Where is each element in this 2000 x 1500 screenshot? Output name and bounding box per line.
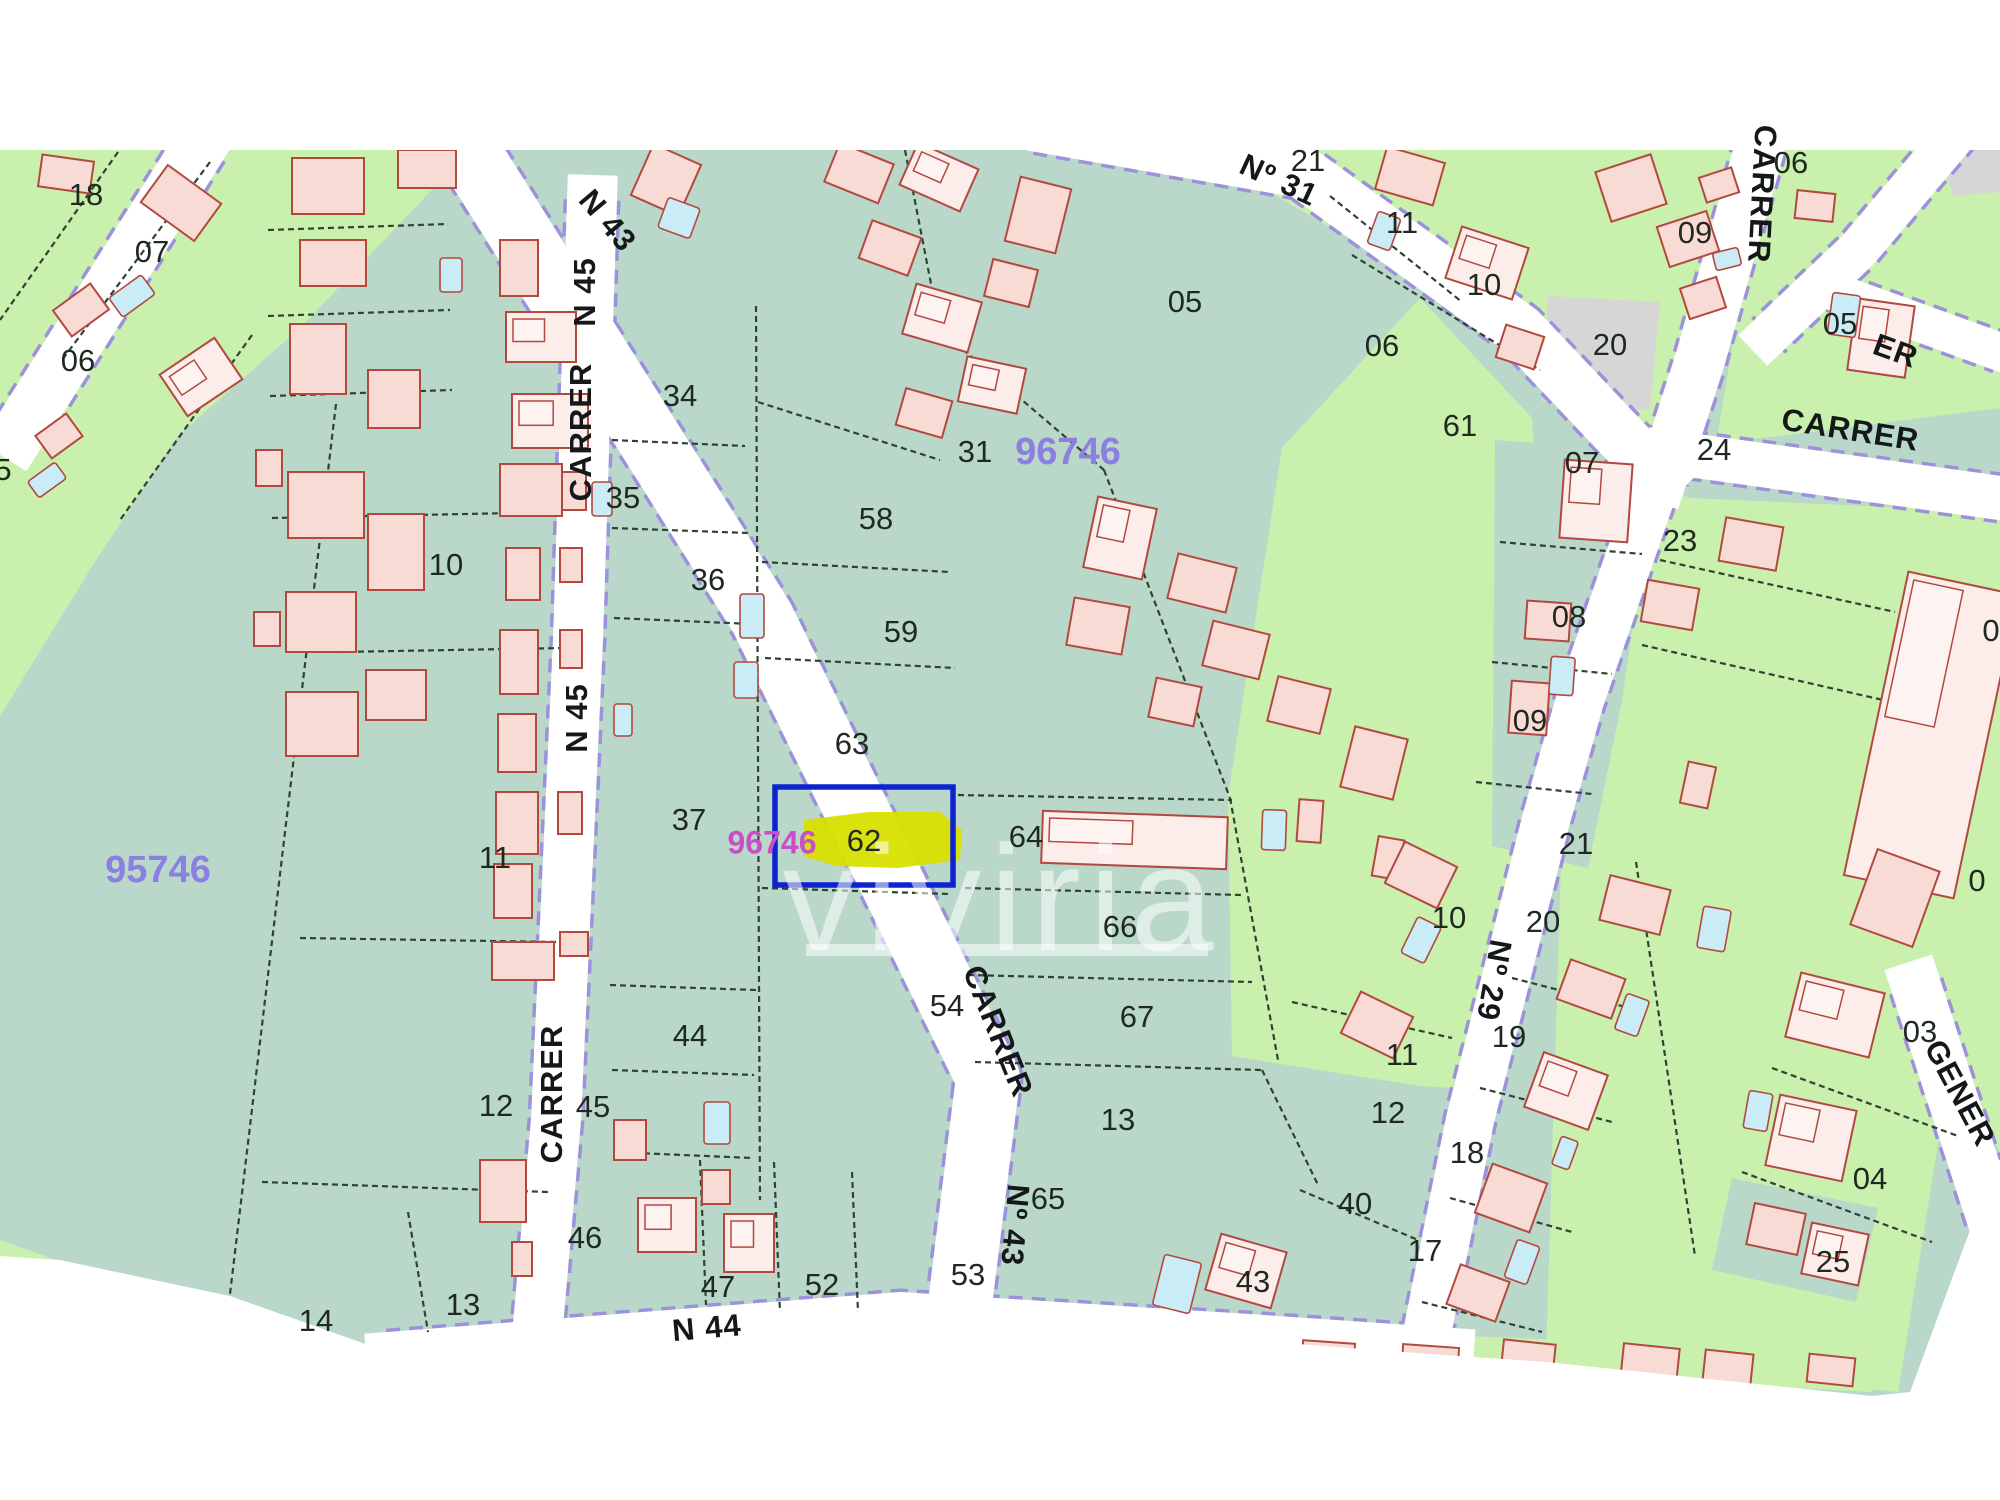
building: [492, 942, 554, 980]
building-footprint: [1148, 678, 1201, 727]
street-label-n-44: N 44: [671, 1307, 743, 1348]
building: [724, 1214, 774, 1272]
building: [1148, 678, 1201, 727]
parcel-label-06: 06: [1365, 328, 1399, 363]
building-inner: [969, 365, 1000, 391]
building: [638, 1198, 696, 1252]
building-footprint: [368, 370, 420, 428]
parcel-label-43: 43: [1236, 1264, 1270, 1299]
building: [500, 240, 538, 296]
building-footprint: [1795, 190, 1836, 222]
building-footprint: [560, 630, 582, 668]
building: [366, 670, 426, 720]
building: [614, 1120, 646, 1160]
building-footprint: [506, 548, 540, 600]
parcel-label-37: 37: [672, 802, 706, 837]
building-inner: [519, 401, 553, 425]
building: [300, 240, 366, 286]
parcel-label-59: 59: [884, 614, 918, 649]
parcel-label-35: 35: [606, 480, 640, 515]
building: [286, 692, 358, 756]
building: [368, 514, 424, 590]
building: [292, 158, 364, 214]
parcel-label-52: 52: [805, 1267, 839, 1302]
parcel-label-54: 54: [930, 988, 964, 1023]
building: [500, 464, 562, 516]
zone-code-96746: 96746: [1015, 431, 1121, 473]
parcel-label-20: 20: [1526, 904, 1560, 939]
building-footprint: [500, 464, 562, 516]
building-footprint: [256, 450, 282, 486]
building: [560, 548, 582, 582]
building-footprint: [1807, 1354, 1856, 1387]
parcel-label-10: 10: [1432, 900, 1466, 935]
parcel-label-14: 14: [299, 1303, 333, 1338]
building: [506, 548, 540, 600]
building-footprint: [300, 240, 366, 286]
building-footprint: [512, 1242, 532, 1276]
building: [1641, 580, 1700, 630]
building-footprint: [560, 932, 588, 956]
zone-code-95746: 95746: [105, 849, 211, 891]
building: [1795, 190, 1836, 222]
building-footprint: [558, 792, 582, 834]
top-margin: [0, 0, 2000, 150]
building-footprint: [292, 158, 364, 214]
street-label-carrer: CARRER: [563, 363, 598, 502]
parcel-label-05: 05: [1168, 284, 1202, 319]
parcel-label-0: 0: [1968, 863, 1985, 898]
building-footprint: [614, 1120, 646, 1160]
building: [1066, 598, 1129, 655]
building-footprint: [286, 692, 358, 756]
parcel-label-53: 53: [951, 1257, 985, 1292]
parcel-label-64: 64: [1009, 819, 1043, 854]
parcel-label-10: 10: [429, 547, 463, 582]
parcel-label-36: 36: [691, 562, 725, 597]
building: [398, 150, 456, 188]
building: [560, 630, 582, 668]
building: [286, 592, 356, 652]
parcel-label-04: 04: [1853, 1161, 1887, 1196]
building-footprint: [254, 612, 280, 646]
pool: [614, 704, 632, 736]
parcel-label-11: 11: [1386, 1037, 1418, 1072]
parcel-label-09: 09: [1513, 703, 1547, 738]
building: [1297, 799, 1324, 843]
building-inner: [731, 1221, 754, 1247]
parcel-label-0: 0: [1982, 613, 1999, 648]
building-footprint: [366, 670, 426, 720]
building: [1765, 1095, 1856, 1182]
parcel-label-13: 13: [1101, 1102, 1135, 1137]
building-footprint: [560, 548, 582, 582]
building-footprint: [398, 150, 456, 188]
building-footprint: [288, 472, 364, 538]
parcel-label-13: 13: [446, 1287, 480, 1322]
building: [290, 324, 346, 394]
parcel-label-45: 45: [576, 1089, 610, 1124]
parcel-label-06: 06: [61, 343, 95, 378]
parcel-label-08: 08: [1552, 599, 1586, 634]
parcel-label-03: 03: [1903, 1014, 1937, 1049]
building-inner: [513, 319, 545, 342]
building: [500, 630, 538, 694]
building-footprint: [1297, 799, 1324, 843]
pool: [734, 662, 758, 698]
parcel-label-65: 65: [1031, 1181, 1065, 1216]
building-footprint: [290, 324, 346, 394]
parcel-label-11: 11: [1386, 205, 1418, 240]
parcel-label-31: 31: [958, 434, 992, 469]
map-svg: viviria957469674696746N 43N 45CARRERN 45…: [0, 0, 2000, 1500]
building-footprint: [1641, 580, 1700, 630]
parcel-label-05: 05: [1823, 306, 1857, 341]
building: [558, 792, 582, 834]
building: [498, 714, 536, 772]
parcel-label-10: 10: [1467, 267, 1501, 302]
zone-code-96746: 96746: [728, 824, 817, 860]
pool: [704, 1102, 730, 1144]
building-footprint: [286, 592, 356, 652]
parcel-label-66: 66: [1103, 909, 1137, 944]
parcel-label-46: 46: [568, 1220, 602, 1255]
parcel-label-06: 06: [1774, 145, 1808, 180]
parcel-label-18: 18: [1450, 1135, 1484, 1170]
building: [512, 1242, 532, 1276]
parcel-label-62: 62: [847, 823, 881, 858]
parcel-label-5: 5: [0, 452, 12, 487]
parcel-label-19: 19: [1492, 1019, 1526, 1054]
parcel-label-24: 24: [1697, 432, 1731, 467]
pool: [1549, 656, 1576, 696]
parcel-label-07: 07: [135, 234, 169, 269]
parcel-label-20: 20: [1593, 327, 1627, 362]
street-label-n-45: N 45: [567, 257, 602, 326]
parcel-label-47: 47: [701, 1269, 735, 1304]
parcel-label-67: 67: [1120, 999, 1154, 1034]
parcel-label-11: 11: [479, 840, 511, 875]
building: [702, 1170, 730, 1204]
parcel-label-07: 07: [1565, 445, 1599, 480]
parcel-label-25: 25: [1816, 1244, 1850, 1279]
building-footprint: [480, 1160, 526, 1222]
building-footprint: [1066, 598, 1129, 655]
parcel-label-17: 17: [1408, 1233, 1442, 1268]
parcel-label-09: 09: [1678, 215, 1712, 250]
building-footprint: [492, 942, 554, 980]
parcel-label-40: 40: [1338, 1186, 1372, 1221]
building: [256, 450, 282, 486]
building: [1807, 1354, 1856, 1387]
parcel-label-18: 18: [69, 177, 103, 212]
building-footprint: [500, 630, 538, 694]
parcel-label-63: 63: [835, 726, 869, 761]
building: [288, 472, 364, 538]
building: [1719, 517, 1784, 570]
parcel-label-61: 61: [1443, 408, 1477, 443]
parcel-label-12: 12: [479, 1088, 513, 1123]
parcel-label-21: 21: [1291, 143, 1325, 178]
pool: [1261, 810, 1286, 851]
building-footprint: [498, 714, 536, 772]
building-footprint: [368, 514, 424, 590]
building: [254, 612, 280, 646]
street-label-carrer: CARRER: [534, 1025, 569, 1164]
parcel-label-12: 12: [1371, 1095, 1405, 1130]
building-footprint: [702, 1170, 730, 1204]
building-footprint: [1719, 517, 1784, 570]
parcel-label-21: 21: [1559, 826, 1593, 861]
building-footprint: [500, 240, 538, 296]
building-inner: [645, 1205, 671, 1229]
parcel-label-23: 23: [1663, 523, 1697, 558]
building: [480, 1160, 526, 1222]
street-label-n-45: N 45: [559, 683, 594, 752]
pool: [740, 594, 764, 638]
building-inner: [1779, 1103, 1820, 1142]
building: [368, 370, 420, 428]
building-inner: [1097, 505, 1130, 542]
pool: [440, 258, 462, 292]
parcel-label-58: 58: [859, 501, 893, 536]
building: [506, 312, 576, 362]
watermark-underline: [806, 944, 1208, 956]
parcel-label-34: 34: [663, 378, 697, 413]
building: [560, 932, 588, 956]
cadastral-map-image[interactable]: viviria957469674696746N 43N 45CARRERN 45…: [0, 0, 2000, 1500]
parcel-label-44: 44: [673, 1018, 707, 1053]
